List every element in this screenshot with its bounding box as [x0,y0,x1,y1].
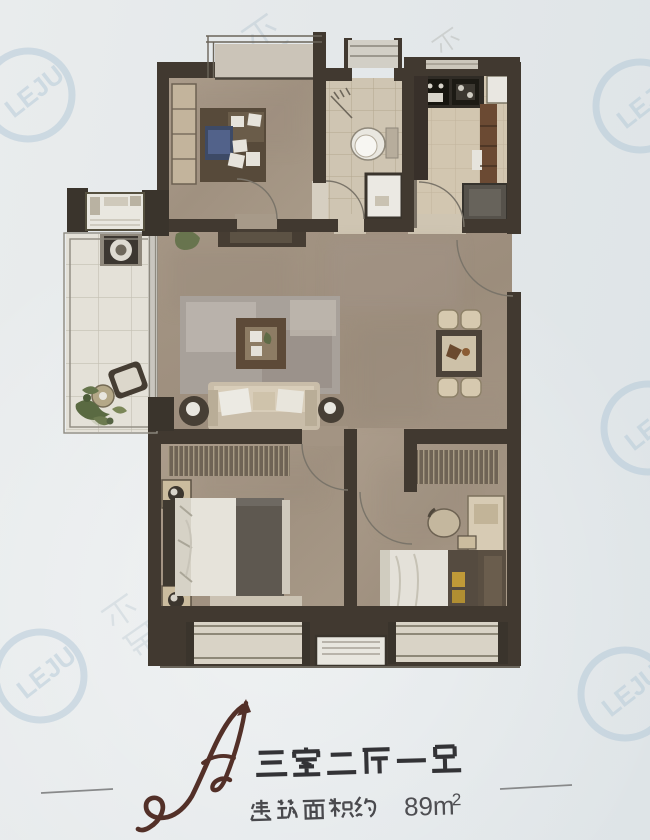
svg-text:LEJU: LEJU [619,392,650,457]
svg-text:2: 2 [452,790,462,809]
svg-text:LEJU: LEJU [596,658,650,723]
svg-text:LEJU: LEJU [611,70,650,135]
svg-text:89m: 89m [404,790,455,821]
